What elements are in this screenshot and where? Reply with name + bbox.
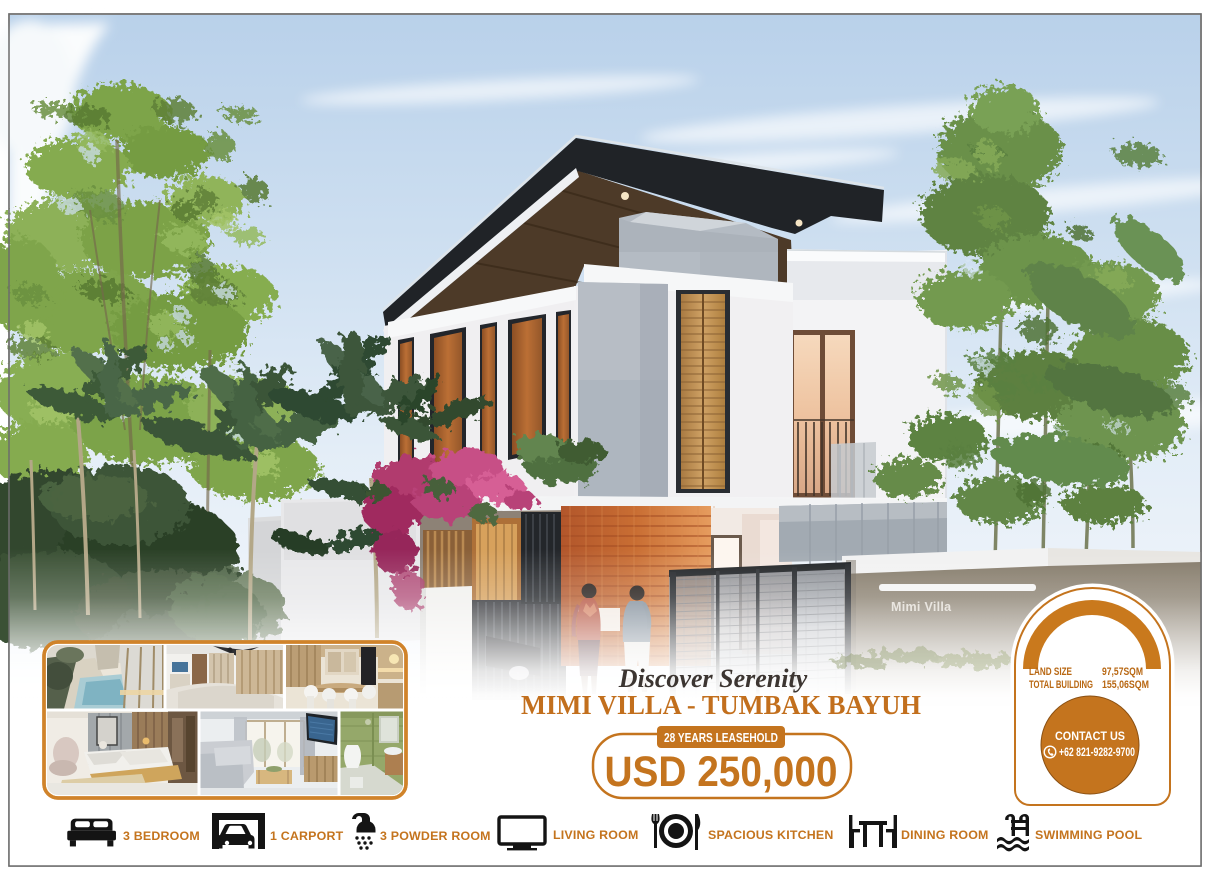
svg-text:SPACIOUS KITCHEN: SPACIOUS KITCHEN <box>708 828 834 842</box>
svg-text:Discover Serenity: Discover Serenity <box>618 664 808 693</box>
svg-text:TOTAL BUILDING: TOTAL BUILDING <box>1029 679 1093 691</box>
svg-text:LIVING ROOM: LIVING ROOM <box>553 828 639 842</box>
svg-text:3 BEDROOM: 3 BEDROOM <box>123 829 200 843</box>
svg-text:CONTACT US: CONTACT US <box>1055 729 1125 743</box>
svg-text:97,57SQM: 97,57SQM <box>1102 666 1143 678</box>
svg-text:155,06SQM: 155,06SQM <box>1102 679 1149 691</box>
svg-text:+62 821-9282-9700: +62 821-9282-9700 <box>1059 747 1135 759</box>
svg-text:DINING ROOM: DINING ROOM <box>901 828 989 842</box>
svg-text:SWIMMING POOL: SWIMMING POOL <box>1035 828 1142 842</box>
svg-text:USD 250,000: USD 250,000 <box>605 748 838 796</box>
svg-text:3 POWDER ROOM: 3 POWDER ROOM <box>380 829 491 843</box>
svg-text:MIMI VILLA - TUMBAK BAYUH: MIMI VILLA - TUMBAK BAYUH <box>521 690 921 720</box>
svg-text:1 CARPORT: 1 CARPORT <box>270 829 344 843</box>
svg-text:28 YEARS LEASEHOLD: 28 YEARS LEASEHOLD <box>664 730 778 745</box>
svg-text:LAND SIZE: LAND SIZE <box>1029 666 1072 678</box>
